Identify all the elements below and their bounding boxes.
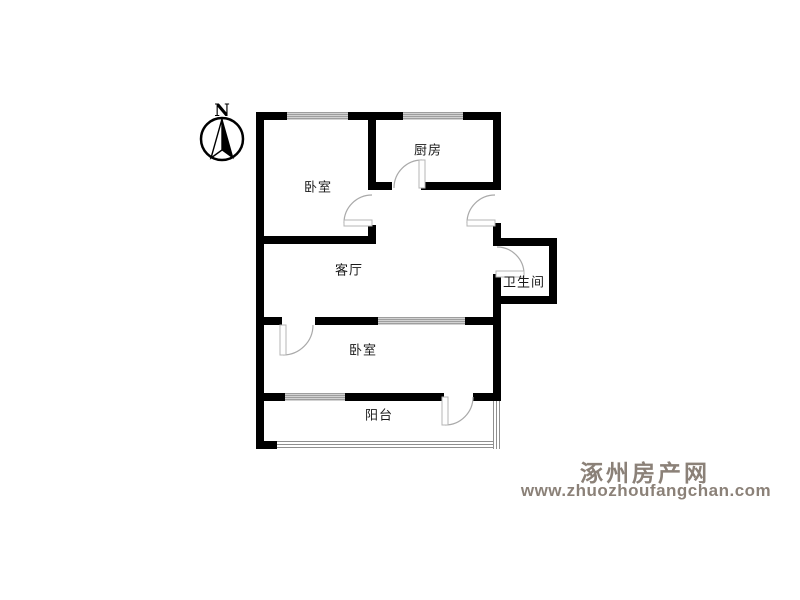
wall-balcony-top-mid [345,393,444,401]
wall-right-upper [493,112,501,190]
wall-kitchen-bottom-left [368,182,392,190]
room-label-bedroom-top: 卧室 [304,177,332,196]
bedroom-bottom-door-arc-icon [283,325,313,355]
floor-plan: N 卧室 厨房 客厅 卫生间 卧室 阳台 涿州房产网 www.zhuozhouf… [0,0,800,600]
wall-divider-bedroom-kitchen [368,120,376,190]
wall-right-lower [493,274,501,401]
room-label-bedroom-bottom: 卧室 [349,340,377,359]
room-label-kitchen: 厨房 [414,140,442,159]
wall-kitchen-bottom-right [421,182,493,190]
watermark-site-url: www.zhuozhoufangchan.com [521,481,771,501]
north-label: N [214,101,230,121]
kitchen-door-arc-icon [394,160,422,188]
wall-living-bottom-left [256,317,282,325]
wall-bedroom-top-bottom [256,236,376,244]
bathroom-door-arc-icon [497,247,524,274]
wall-right-mid [493,223,501,246]
window-bedroom-balcony-icon [285,393,345,401]
room-label-living-room: 客厅 [335,260,363,279]
compass-needle-left [211,119,222,158]
entry-door-leaf-icon [467,220,495,226]
north-arrow-icon: N [201,101,243,160]
wall-balcony-bottom-corner [256,441,277,449]
window-living-bedroom-icon [378,317,465,325]
window-kitchen-icon [403,112,463,120]
balcony-door-arc-icon [445,397,473,425]
wall-bathroom-bottom [501,296,557,304]
window-bedroom-top-icon [287,112,348,120]
wall-balcony-top-right [473,393,501,401]
compass-needle-right [222,119,233,158]
balcony-door-leaf-icon [442,397,448,425]
wall-balcony-top-left [256,393,285,401]
entry-door-arc-icon [467,195,495,223]
window-balcony-right-icon [493,401,501,449]
wall-bathroom-right [549,238,557,304]
compass-circle [201,118,243,160]
bedroom-bottom-door-leaf-icon [280,325,286,355]
room-label-balcony: 阳台 [365,405,393,424]
bedroom-top-door-arc-icon [344,195,372,223]
window-balcony-bottom-icon [277,441,501,449]
room-label-bathroom: 卫生间 [503,272,545,291]
